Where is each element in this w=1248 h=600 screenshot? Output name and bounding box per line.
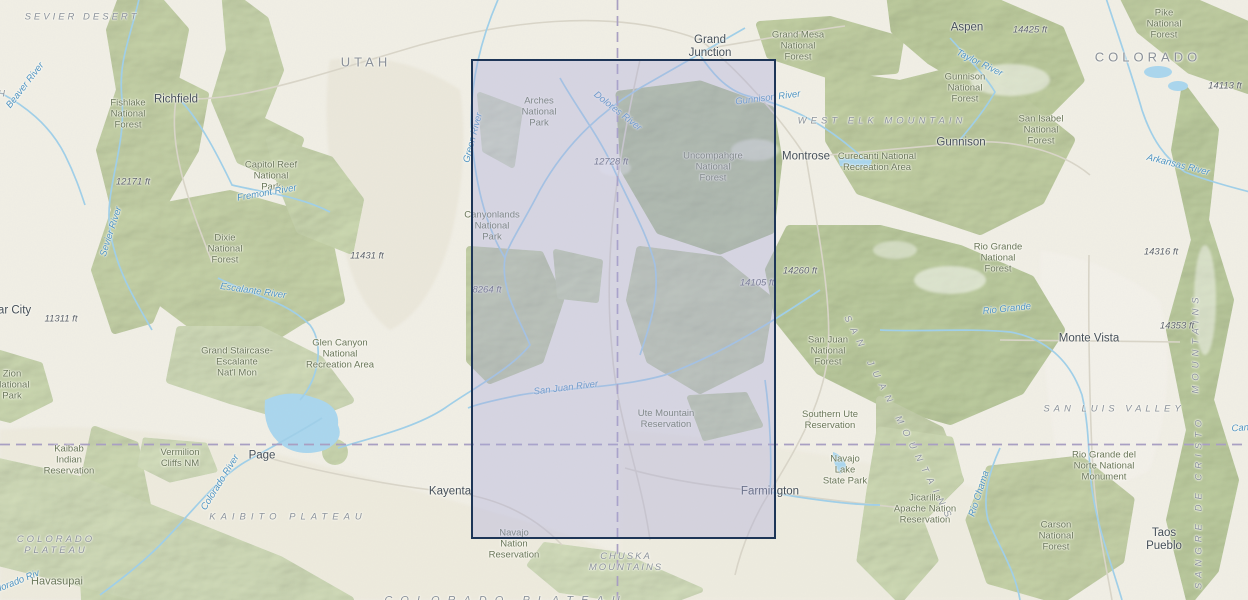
selection-rectangle[interactable]	[471, 59, 776, 539]
map-viewport[interactable]: UTAHCOLORADORichfieldCedar CityGrand Jun…	[0, 0, 1248, 600]
